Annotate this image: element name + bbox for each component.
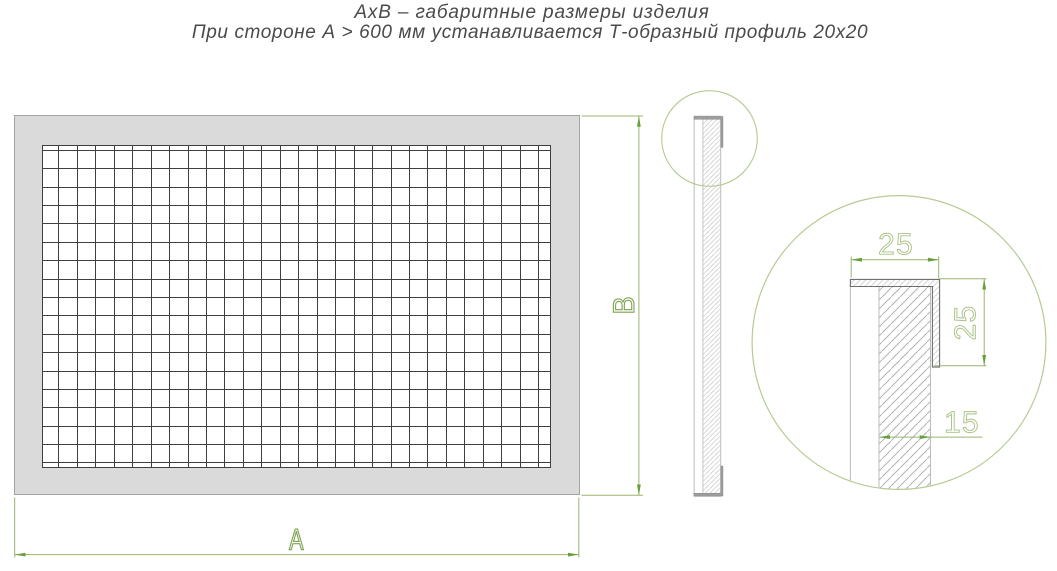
svg-text:АхВ – габаритные размеры издел: АхВ – габаритные размеры изделия <box>353 2 709 23</box>
svg-text:При стороне А > 600 мм устанав: При стороне А > 600 мм устанавливается Т… <box>192 22 868 43</box>
